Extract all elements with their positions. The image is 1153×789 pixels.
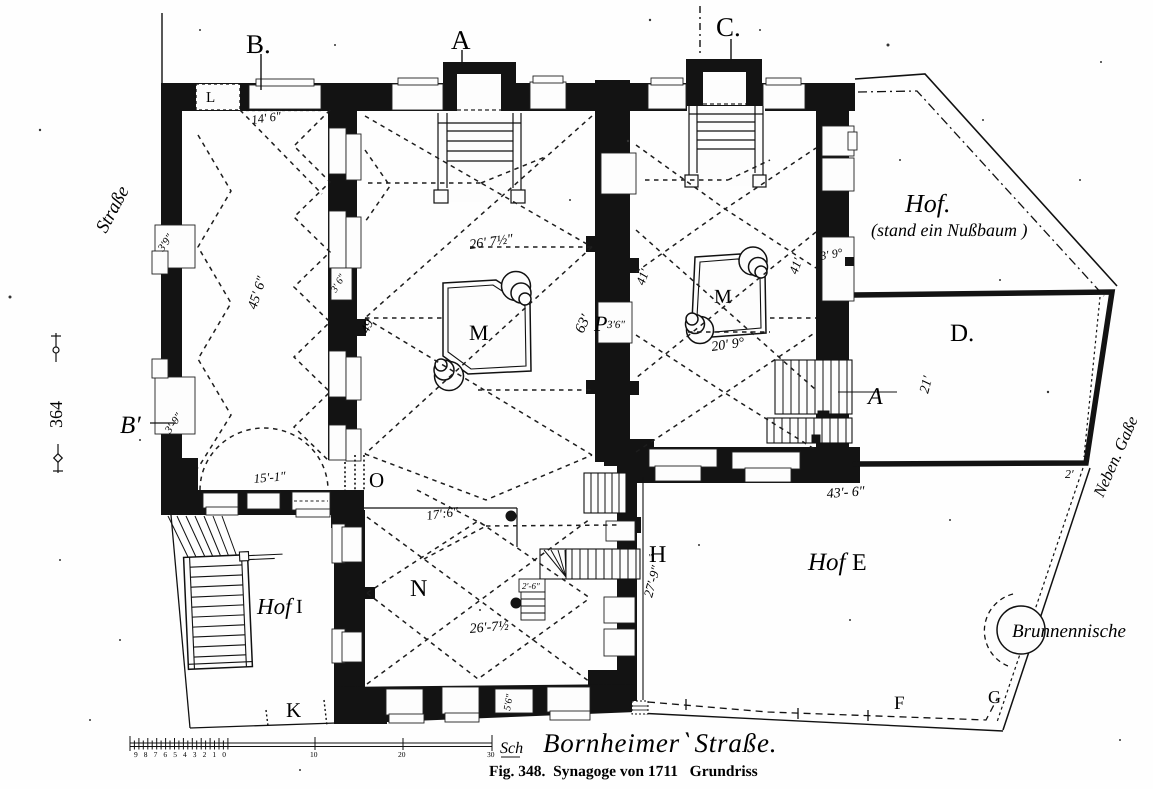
svg-text:43′- 6″: 43′- 6″ [826, 484, 865, 502]
svg-text:M: M [714, 286, 732, 308]
svg-text:C.: C. [716, 12, 741, 42]
svg-text:15′-1″: 15′-1″ [253, 468, 287, 486]
svg-text:Hof.: Hof. [904, 189, 951, 218]
svg-text:O: O [369, 468, 384, 492]
svg-text:Hof: Hof [256, 594, 295, 619]
svg-text:364: 364 [46, 401, 66, 428]
svg-text:Brunnennische: Brunnennische [1012, 621, 1126, 642]
svg-text:7: 7 [154, 750, 158, 759]
svg-text:3: 3 [193, 750, 197, 759]
svg-text:9: 9 [134, 750, 138, 759]
svg-text:2′: 2′ [1065, 467, 1074, 481]
svg-text:5: 5 [173, 750, 177, 759]
svg-text:B′: B′ [120, 412, 141, 439]
svg-text:″: ″ [648, 552, 652, 562]
svg-text:20: 20 [398, 750, 406, 759]
svg-text:0: 0 [222, 750, 226, 759]
svg-text:10: 10 [310, 750, 318, 759]
svg-text:3′6″: 3′6″ [606, 319, 625, 331]
svg-text:1: 1 [212, 750, 216, 759]
svg-text:30: 30 [487, 750, 495, 759]
svg-text:2: 2 [203, 750, 207, 759]
svg-text:Fig. 348. Synagoge von 1711: Fig. 348. Synagoge von 1711 Grundriss [489, 763, 758, 780]
svg-text:B.: B. [246, 29, 271, 59]
svg-text:F: F [894, 693, 905, 714]
svg-text:Bornheimer‵ Straße.: Bornheimer‵ Straße. [543, 728, 777, 758]
svg-text:4: 4 [183, 750, 187, 759]
svg-text:Hof: Hof [807, 549, 849, 576]
svg-text:8: 8 [144, 750, 148, 759]
svg-text:P: P [593, 311, 607, 336]
svg-text:G: G [988, 687, 1001, 707]
svg-text:L: L [206, 90, 215, 106]
svg-text:D.: D. [950, 320, 974, 347]
svg-text:E: E [852, 550, 867, 576]
svg-text:A: A [451, 25, 471, 55]
svg-text:I: I [296, 596, 303, 618]
svg-text:K: K [286, 698, 301, 722]
svg-text:M: M [469, 320, 489, 345]
svg-text:6: 6 [163, 750, 167, 759]
svg-text:A: A [866, 384, 883, 410]
svg-text:2′-6″: 2′-6″ [522, 581, 540, 591]
svg-text:(stand ein Nußbaum ): (stand ein Nußbaum ) [871, 220, 1028, 240]
svg-text:N: N [410, 576, 427, 602]
svg-text:Sch: Sch [500, 740, 523, 757]
